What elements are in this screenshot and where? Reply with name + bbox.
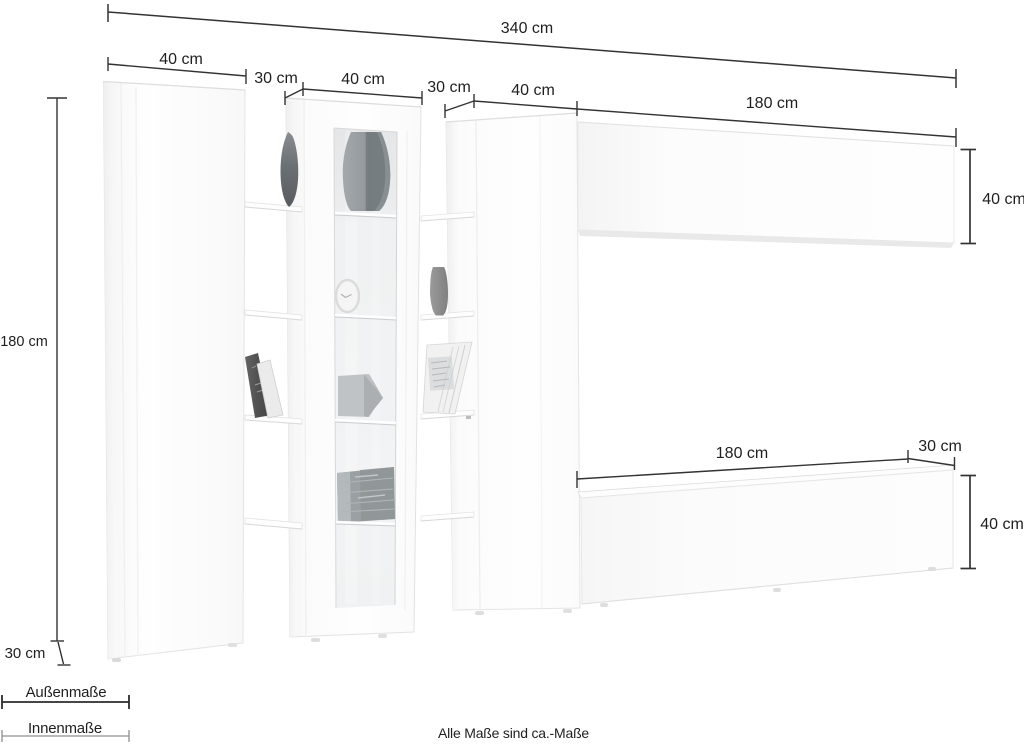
svg-text:340 cm: 340 cm (501, 20, 553, 37)
svg-text:30 cm: 30 cm (254, 70, 298, 87)
svg-text:180 cm: 180 cm (746, 95, 798, 112)
svg-text:180 cm: 180 cm (716, 445, 768, 462)
svg-text:40 cm: 40 cm (982, 191, 1024, 208)
svg-text:30 cm: 30 cm (5, 645, 46, 662)
svg-text:40 cm: 40 cm (980, 516, 1024, 533)
svg-text:Außenmaße: Außenmaße (26, 684, 107, 701)
svg-text:Alle Maße sind ca.-Maße: Alle Maße sind ca.-Maße (438, 725, 589, 741)
svg-text:30 cm: 30 cm (918, 438, 962, 455)
svg-text:Innenmaße: Innenmaße (28, 720, 102, 737)
svg-text:40 cm: 40 cm (341, 71, 385, 88)
svg-text:30 cm: 30 cm (427, 79, 471, 96)
svg-text:40 cm: 40 cm (511, 82, 555, 99)
svg-text:40 cm: 40 cm (159, 51, 203, 68)
svg-text:180 cm: 180 cm (0, 334, 48, 350)
